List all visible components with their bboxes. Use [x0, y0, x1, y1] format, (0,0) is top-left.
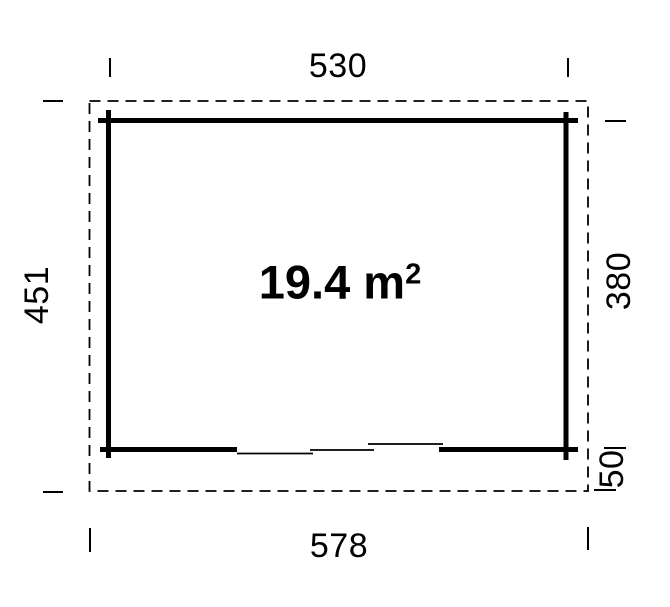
dimension-label-right-offset: 50 [595, 450, 629, 489]
dimension-label-top-width: 530 [309, 49, 367, 83]
area-superscript: 2 [405, 258, 421, 290]
dimension-label-left-height: 451 [20, 266, 54, 324]
dimension-label-right-height: 380 [602, 252, 636, 310]
area-value: 19.4 m [259, 256, 405, 309]
floor-plan: 530 578 451 380 50 19.4 m2 [0, 0, 670, 607]
dimension-label-bottom-width: 578 [310, 529, 368, 563]
area-label: 19.4 m2 [259, 259, 422, 306]
